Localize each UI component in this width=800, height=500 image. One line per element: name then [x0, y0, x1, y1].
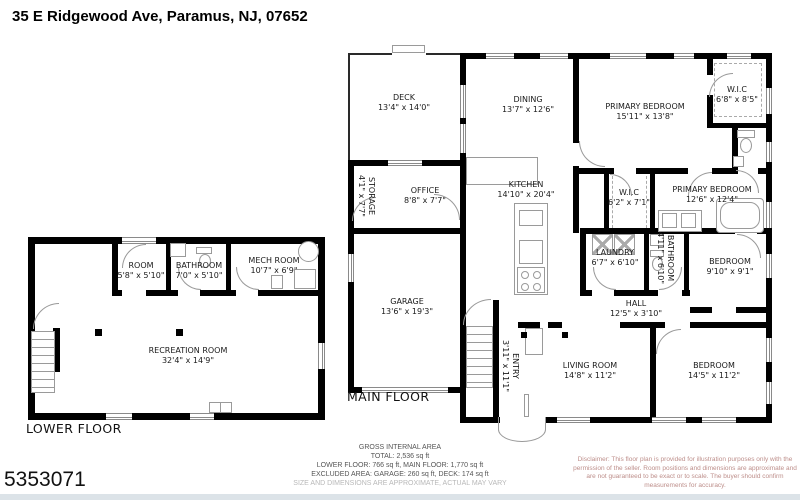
- door-arc: [579, 141, 605, 167]
- door-arc: [737, 234, 761, 258]
- wall: [112, 290, 122, 296]
- window: [674, 53, 694, 59]
- bathtub-basin: [720, 202, 760, 229]
- window: [610, 53, 646, 59]
- sink: [681, 213, 696, 228]
- room-dims: 4'1" x 7'7": [356, 161, 366, 231]
- room-label-wic-2: W.I.C 6'2" x 7'1": [599, 188, 659, 208]
- area-summary-excluded: EXCLUDED AREA: GARAGE: 260 sq ft, DECK: …: [250, 470, 550, 479]
- room-label-bathroom-main: BATHROOM 4'11" x 6'10": [655, 221, 675, 295]
- room-dims: 6'8" x 8'5": [707, 95, 767, 105]
- room-dims: 13'6" x 19'3": [352, 307, 462, 317]
- listing-id: 5353071: [4, 468, 86, 492]
- toilet-tank: [737, 130, 755, 138]
- area-summary-floors: LOWER FLOOR: 766 sq ft, MAIN FLOOR: 1,77…: [250, 461, 550, 470]
- room-label-laundry: LAUNDRY 6'7" x 6'10": [580, 248, 650, 268]
- room-name: HALL: [626, 299, 646, 308]
- room-dims: 13'7" x 12'6": [473, 105, 583, 115]
- room-name: PRIMARY BEDROOM: [672, 185, 751, 194]
- support-post: [562, 332, 568, 338]
- window-step: [220, 402, 232, 413]
- stairs: [466, 326, 493, 388]
- room-name: BATHROOM: [666, 235, 675, 281]
- room-dims: 12'5" x 3'10": [581, 309, 691, 319]
- island-sink: [519, 210, 543, 226]
- wall: [493, 300, 499, 417]
- floor-plan-page: 35 E Ridgewood Ave, Paramus, NJ, 07652: [0, 0, 800, 500]
- wall: [650, 328, 656, 417]
- window: [460, 85, 466, 118]
- wall: [258, 290, 319, 296]
- window: [727, 53, 751, 59]
- window: [766, 382, 772, 404]
- room-name: OFFICE: [411, 186, 440, 195]
- wall: [707, 123, 772, 128]
- window: [557, 417, 590, 423]
- footer-strip: [0, 494, 800, 500]
- room-name: RECREATION ROOM: [149, 346, 228, 355]
- wall: [426, 53, 462, 55]
- wall: [348, 53, 392, 55]
- burner: [521, 283, 529, 291]
- wall: [200, 290, 236, 296]
- room-dims: 12'6" x 12'4": [657, 195, 767, 205]
- room-dims: 13'4" x 14'0": [349, 103, 459, 113]
- room-name: LAUNDRY: [596, 248, 634, 257]
- door-arc: [593, 267, 616, 290]
- wall: [590, 417, 652, 423]
- area-summary: GROSS INTERNAL AREA TOTAL: 2,536 sq ft L…: [250, 443, 550, 488]
- room-label-primary-bedroom-1: PRIMARY BEDROOM 15'11" x 13'8": [590, 102, 700, 122]
- room-label-recreation-room: RECREATION ROOM 32'4" x 14'9": [133, 346, 243, 366]
- wall: [758, 168, 772, 174]
- main-floor-title: MAIN FLOOR: [347, 389, 429, 404]
- room-label-primary-bedroom-2: PRIMARY BEDROOM 12'6" x 12'4": [657, 185, 767, 205]
- room-label-garage: GARAGE 13'6" x 19'3": [352, 297, 462, 317]
- wall: [690, 322, 772, 328]
- front-door-arc: [498, 417, 546, 442]
- room-dims: 32'4" x 14'9": [133, 356, 243, 366]
- front-door-leaf: [524, 394, 529, 417]
- dishwasher: [519, 240, 543, 264]
- window: [348, 254, 354, 282]
- room-label-office: OFFICE 8'8" x 7'7": [370, 186, 480, 206]
- area-summary-note: SIZE AND DIMENSIONS ARE APPROXIMATE, ACT…: [250, 479, 550, 488]
- disclaimer-text: Disclaimer: This floor plan is provided …: [573, 456, 797, 490]
- window: [122, 237, 156, 244]
- room-dims: 9'10" x 9'1": [685, 267, 775, 277]
- burner: [521, 271, 529, 279]
- window: [106, 413, 132, 420]
- wall: [682, 290, 690, 296]
- room-name: PRIMARY BEDROOM: [605, 102, 684, 111]
- room-name: W.I.C: [619, 188, 639, 197]
- window: [702, 417, 736, 423]
- toilet-tank: [196, 247, 212, 254]
- room-label-wic-1: W.I.C 6'8" x 8'5": [707, 85, 767, 105]
- wall: [636, 168, 688, 174]
- wall: [28, 413, 325, 420]
- door-arc: [463, 299, 491, 325]
- room-name: DINING: [513, 95, 542, 104]
- wall: [620, 322, 665, 328]
- wall: [707, 53, 713, 75]
- room-name: BEDROOM: [693, 361, 735, 370]
- room-label-deck: DECK 13'4" x 14'0": [349, 93, 459, 113]
- wall: [686, 417, 702, 423]
- window: [190, 413, 214, 420]
- room-label-hall: HALL 12'5" x 3'10": [581, 299, 691, 319]
- room-dims: 14'5" x 11'2": [659, 371, 769, 381]
- room-label-bedroom-small: BEDROOM 9'10" x 9'1": [685, 257, 775, 277]
- window: [460, 124, 466, 153]
- room-name: W.I.C: [727, 85, 747, 94]
- room-name: BEDROOM: [709, 257, 751, 266]
- support-post: [521, 332, 527, 338]
- room-name: DECK: [393, 93, 415, 102]
- sink: [733, 156, 744, 167]
- room-dims: 15'11" x 13'8": [590, 112, 700, 122]
- room-label-mech-room: MECH ROOM 10'7" x 6'9": [229, 256, 319, 276]
- room-label-kitchen: KITCHEN 14'10" x 20'4": [471, 180, 581, 200]
- window: [766, 202, 772, 228]
- room-dims: 3'11" x 11'1": [500, 326, 510, 406]
- wall: [146, 290, 178, 296]
- area-summary-heading: GROSS INTERNAL AREA: [250, 443, 550, 452]
- wall: [614, 290, 658, 296]
- room-dims: 8'8" x 7'7": [370, 196, 480, 206]
- wall: [460, 417, 500, 423]
- room-dims: 14'10" x 20'4": [471, 190, 581, 200]
- support-post: [176, 329, 183, 336]
- wall: [548, 322, 562, 328]
- room-dims: 10'7" x 6'9": [229, 266, 319, 276]
- room-label-living-room: LIVING ROOM 14'8" x 11'2": [535, 361, 645, 381]
- area-summary-total: TOTAL: 2,536 sq ft: [250, 452, 550, 461]
- wall: [318, 237, 325, 420]
- toilet-bowl: [740, 138, 752, 153]
- sink: [170, 243, 186, 257]
- room-label-bedroom-large: BEDROOM 14'5" x 11'2": [659, 361, 769, 381]
- window: [318, 343, 325, 369]
- room-name: LIVING ROOM: [563, 361, 617, 370]
- door-arc: [33, 303, 59, 329]
- window: [652, 417, 686, 423]
- room-name: MECH ROOM: [248, 256, 299, 265]
- room-dims: 4'11" x 6'10": [655, 221, 665, 295]
- wall: [690, 307, 712, 313]
- room-dims: 14'8" x 11'2": [535, 371, 645, 381]
- room-name: BATHROOM: [176, 261, 222, 270]
- room-dims: 6'7" x 6'10": [580, 258, 650, 268]
- room-name: GARAGE: [390, 297, 424, 306]
- window: [486, 53, 514, 59]
- room-name: ENTRY: [511, 353, 520, 379]
- support-post: [95, 329, 102, 336]
- window: [766, 142, 772, 162]
- window: [766, 338, 772, 362]
- page-title: 35 E Ridgewood Ave, Paramus, NJ, 07652: [12, 8, 308, 25]
- room-dims: 6'2" x 7'1": [599, 198, 659, 208]
- room-name: ROOM: [128, 261, 153, 270]
- wall: [736, 417, 772, 423]
- utility-fixture: [271, 275, 283, 289]
- lower-floor-title: LOWER FLOOR: [26, 421, 122, 436]
- burner: [533, 271, 541, 279]
- wall: [580, 290, 592, 296]
- window: [388, 160, 422, 166]
- wall: [712, 168, 738, 174]
- window: [540, 53, 568, 59]
- room-label-dining: DINING 13'7" x 12'6": [473, 95, 583, 115]
- wall: [736, 307, 772, 313]
- door-arc: [656, 329, 681, 354]
- entry-closet: [525, 328, 543, 355]
- room-label-entry: ENTRY 3'11" x 11'1": [500, 326, 520, 406]
- stairs: [31, 331, 55, 393]
- deck-step: [392, 45, 425, 53]
- room-name: KITCHEN: [509, 180, 544, 189]
- burner: [533, 283, 541, 291]
